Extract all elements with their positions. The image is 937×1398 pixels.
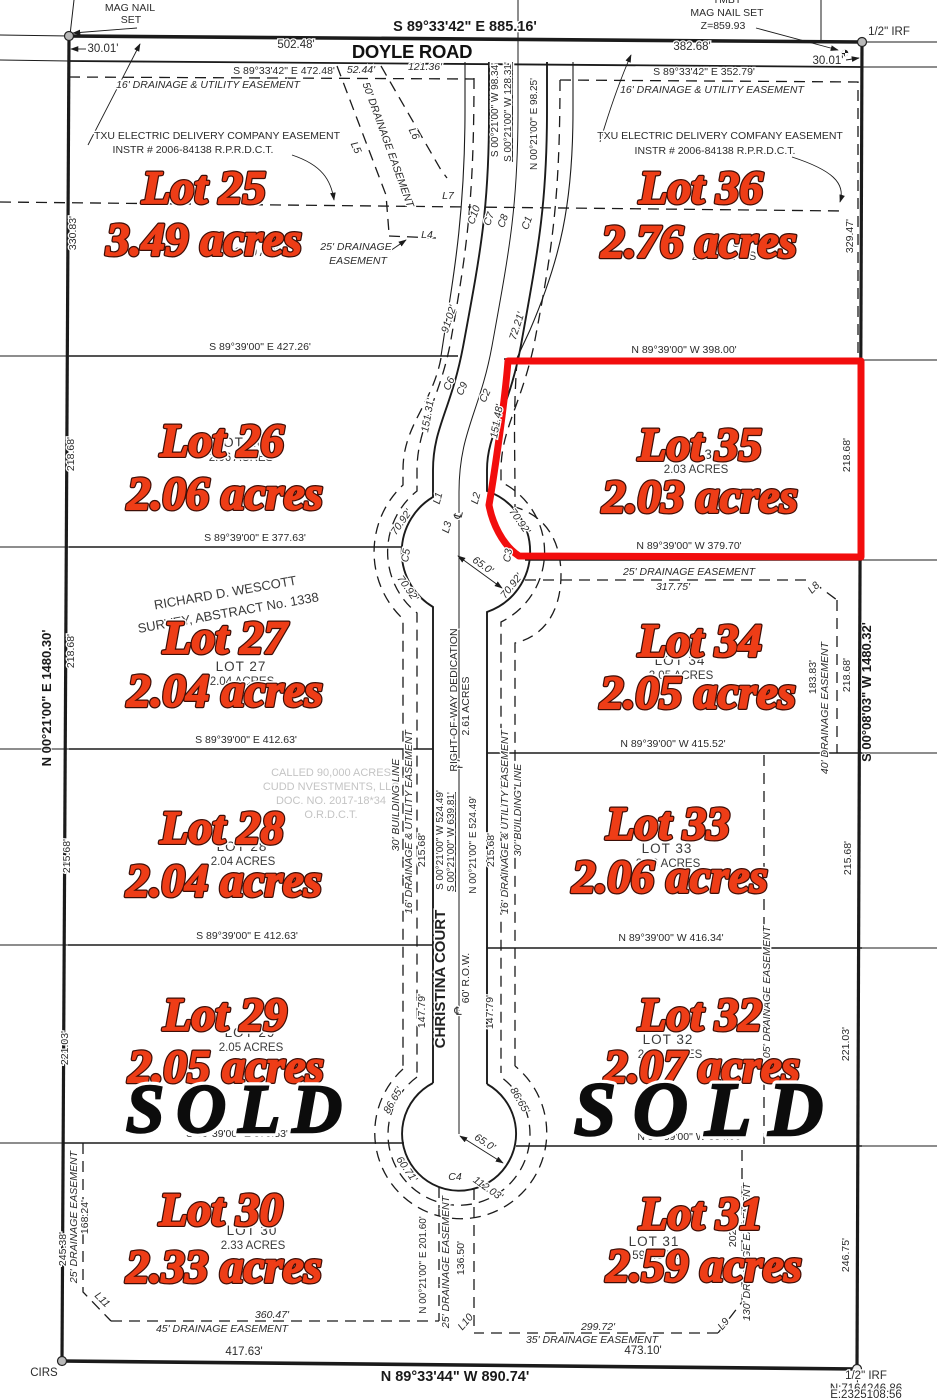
svg-text:Lot 35: Lot 35: [637, 419, 762, 471]
svg-text:473.10': 473.10': [624, 1345, 661, 1357]
svg-text:S 89°39'00" E 377.63': S 89°39'00" E 377.63': [204, 532, 306, 544]
svg-text:221.03': 221.03': [840, 1027, 852, 1061]
svg-text:Lot 26: Lot 26: [159, 415, 285, 467]
svg-text:S 00°21'00" W 639.81': S 00°21'00" W 639.81': [446, 792, 457, 892]
svg-text:16' DRAINAGE & UTILITY EASEMEN: 16' DRAINAGE & UTILITY EASEMENT: [116, 79, 301, 91]
svg-text:2.06 acres: 2.06 acres: [126, 468, 323, 520]
svg-text:CUDD NVESTMENTS, LLC: CUDD NVESTMENTS, LLC: [263, 781, 399, 793]
svg-text:CALLED 90,000 ACRES: CALLED 90,000 ACRES: [271, 767, 391, 779]
svg-text:30.01': 30.01': [88, 43, 119, 55]
svg-text:168.24': 168.24': [79, 1200, 91, 1234]
svg-text:215.68': 215.68': [485, 833, 497, 867]
svg-text:2.33 acres: 2.33 acres: [125, 1241, 322, 1293]
svg-text:2.06 acres: 2.06 acres: [571, 851, 768, 903]
svg-text:218.68': 218.68': [65, 634, 77, 668]
svg-text:S 00°21'00" W 524.49': S 00°21'00" W 524.49': [435, 790, 446, 890]
svg-text:1/2" IRF: 1/2" IRF: [868, 26, 910, 38]
svg-text:Lot 27: Lot 27: [162, 612, 290, 664]
svg-text:Lot 30: Lot 30: [158, 1184, 283, 1236]
svg-text:218.68': 218.68': [841, 658, 853, 692]
svg-text:2.76 acres: 2.76 acres: [600, 216, 797, 268]
svg-text:2.04 acres: 2.04 acres: [125, 855, 322, 907]
svg-text:S 89°33'42" E 472.48': S 89°33'42" E 472.48': [233, 65, 335, 77]
svg-text:L4: L4: [421, 229, 433, 241]
svg-text:218.68': 218.68': [841, 438, 853, 472]
svg-text:SOLD: SOLD: [574, 1068, 840, 1152]
svg-text:TMBT: TMBT: [713, 0, 742, 6]
svg-text:25' DRAINAGE EASEMENT: 25' DRAINAGE EASEMENT: [622, 566, 757, 578]
svg-text:221.03': 221.03': [59, 1031, 71, 1065]
svg-text:330.83': 330.83': [67, 216, 79, 250]
svg-text:℄: ℄: [453, 1006, 462, 1018]
svg-text:215.68': 215.68': [61, 839, 73, 873]
svg-text:INSTR # 2006-84138 R.P.R.D.C.T: INSTR # 2006-84138 R.P.R.D.C.T.: [113, 144, 274, 156]
svg-text:S 00°21'00" W 128.31': S 00°21'00" W 128.31': [503, 62, 514, 162]
svg-text:Lot 31: Lot 31: [638, 1188, 763, 1240]
svg-text:Lot 29: Lot 29: [162, 989, 287, 1041]
svg-text:382.68': 382.68': [673, 41, 710, 53]
svg-text:MAG NAIL: MAG NAIL: [105, 2, 155, 14]
svg-text:2.04 acres: 2.04 acres: [126, 665, 323, 717]
svg-text:218.68': 218.68': [65, 437, 77, 471]
svg-text:16' DRAINAGE & UTILITY EASEMEN: 16' DRAINAGE & UTILITY EASEMENT: [403, 728, 415, 913]
svg-text:Lot 33: Lot 33: [605, 798, 730, 850]
svg-text:25' DRAINAGE EASEMENT: 25' DRAINAGE EASEMENT: [440, 1194, 452, 1329]
svg-text:S 89°39'00" E 427.26': S 89°39'00" E 427.26': [209, 341, 311, 353]
svg-text:215.68': 215.68': [842, 841, 854, 875]
svg-text:Lot 36: Lot 36: [638, 162, 764, 214]
svg-text:16' DRAINAGE & UTILITY EASEMEN: 16' DRAINAGE & UTILITY EASEMENT: [620, 84, 805, 96]
svg-text:L7: L7: [442, 190, 455, 202]
svg-text:30' BUILDING LINE: 30' BUILDING LINE: [512, 763, 524, 856]
svg-text:C4: C4: [448, 1171, 462, 1183]
svg-text:TXU ELECTRIC DELIVERY COMPANY: TXU ELECTRIC DELIVERY COMPANY EASEMENT: [94, 130, 341, 142]
svg-text:N 89°39'00" W 379.70': N 89°39'00" W 379.70': [636, 540, 741, 552]
svg-text:45' DRAINAGE EASEMENT: 45' DRAINAGE EASEMENT: [156, 1323, 290, 1335]
svg-text:S 89°33'42" E 352.79': S 89°33'42" E 352.79': [653, 66, 755, 78]
svg-text:N 00°21'00" E 201.60': N 00°21'00" E 201.60': [418, 1216, 429, 1314]
svg-text:N 00°21'00" E 98.25': N 00°21'00" E 98.25': [529, 78, 540, 170]
svg-text:246.75': 246.75': [840, 1238, 852, 1272]
svg-text:3.49 acres: 3.49 acres: [105, 214, 302, 266]
svg-text:N 00°21'00" E 524.49': N 00°21'00" E 524.49': [468, 796, 479, 894]
svg-text:417.63': 417.63': [225, 1346, 262, 1358]
svg-text:16' DRAINAGE & UTILITY EASEMEN: 16' DRAINAGE & UTILITY EASEMENT: [499, 728, 511, 913]
svg-text:S 00°08'03" W 1480.32': S 00°08'03" W 1480.32': [859, 622, 874, 762]
svg-text:S 89°39'00" E 412.63': S 89°39'00" E 412.63': [195, 734, 297, 746]
svg-text:299.72': 299.72': [580, 1321, 616, 1333]
svg-text:Lot 25: Lot 25: [141, 162, 266, 214]
svg-text:S 00°21'00" W 98.34': S 00°21'00" W 98.34': [490, 63, 501, 157]
svg-text:215.68': 215.68': [416, 833, 428, 867]
svg-text:RIGHT-OF-WAY DEDICATION: RIGHT-OF-WAY DEDICATION: [448, 628, 460, 771]
svg-text:CHRISTINA COURT: CHRISTINA COURT: [432, 910, 449, 1049]
svg-text:SOLD: SOLD: [126, 1071, 354, 1147]
svg-text:183.83': 183.83': [807, 660, 819, 694]
svg-text:2.05 acres: 2.05 acres: [599, 667, 796, 719]
svg-text:SET: SET: [121, 14, 142, 26]
svg-text:EASEMENT: EASEMENT: [329, 255, 388, 267]
svg-text:INSTR # 2006-84138 R.P.R.D.C.T: INSTR # 2006-84138 R.P.R.D.C.T.: [635, 145, 796, 157]
svg-text:40' DRAINAGE EASEMENT: 40' DRAINAGE EASEMENT: [819, 640, 831, 774]
svg-text:317.75': 317.75': [656, 581, 691, 593]
svg-text:147.79': 147.79': [484, 995, 496, 1029]
svg-text:360.47': 360.47': [255, 1309, 290, 1321]
svg-text:N 89°33'44" W 890.74': N 89°33'44" W 890.74': [381, 1369, 530, 1385]
svg-text:Lot 34: Lot 34: [637, 615, 762, 667]
svg-text:2.03 acres: 2.03 acres: [601, 471, 798, 523]
svg-text:DOYLE ROAD: DOYLE ROAD: [352, 41, 472, 62]
svg-text:N 89°39'00" W 415.52': N 89°39'00" W 415.52': [620, 738, 725, 750]
svg-text:CIRS: CIRS: [30, 1367, 58, 1379]
svg-text:25' DRAINAGE: 25' DRAINAGE: [319, 241, 392, 253]
svg-text:N 00°21'00" E 1480.30': N 00°21'00" E 1480.30': [39, 630, 54, 767]
svg-text:S 89°33'42" E 885.16': S 89°33'42" E 885.16': [393, 19, 537, 35]
svg-text:S 89°39'00" E 412.63': S 89°39'00" E 412.63': [196, 930, 298, 942]
svg-text:2.61 ACRES: 2.61 ACRES: [460, 677, 472, 736]
svg-text:C3: C3: [501, 548, 515, 563]
svg-text:DOC. NO. 2017-18*34: DOC. NO. 2017-18*34: [276, 795, 386, 807]
svg-text:O.R.D.C.T.: O.R.D.C.T.: [304, 809, 357, 821]
svg-text:30' BUILDING LINE: 30' BUILDING LINE: [390, 758, 402, 851]
svg-text:N 89°39'00" W 398.00': N 89°39'00" W 398.00': [631, 344, 736, 356]
svg-text:136.50': 136.50': [455, 1241, 467, 1275]
svg-text:N 89°39'00" W 416.34': N 89°39'00" W 416.34': [618, 932, 723, 944]
svg-text:TXU ELECTRIC DELIVERY COMFANY: TXU ELECTRIC DELIVERY COMFANY EASEMENT: [597, 130, 843, 142]
svg-text:Lot 32: Lot 32: [637, 989, 762, 1041]
svg-text:147.79': 147.79': [416, 994, 428, 1028]
svg-text:52.44': 52.44': [347, 64, 376, 76]
svg-text:502.48': 502.48': [277, 39, 314, 51]
svg-text:329.47': 329.47': [844, 219, 856, 253]
svg-text:2.59 acres: 2.59 acres: [605, 1240, 802, 1292]
svg-text:1/2" IRF: 1/2" IRF: [845, 1370, 887, 1382]
svg-text:MAG NAIL SET: MAG NAIL SET: [690, 7, 764, 19]
svg-text:Z=859.93: Z=859.93: [701, 20, 746, 32]
svg-text:C5: C5: [399, 548, 413, 563]
svg-text:E:2325108.56: E:2325108.56: [830, 1389, 902, 1398]
svg-text:30.01': 30.01': [813, 55, 844, 67]
svg-text:Lot 28: Lot 28: [159, 802, 284, 854]
svg-text:60' R.O.W.: 60' R.O.W.: [460, 953, 472, 1003]
svg-text:121.36': 121.36': [408, 61, 443, 73]
